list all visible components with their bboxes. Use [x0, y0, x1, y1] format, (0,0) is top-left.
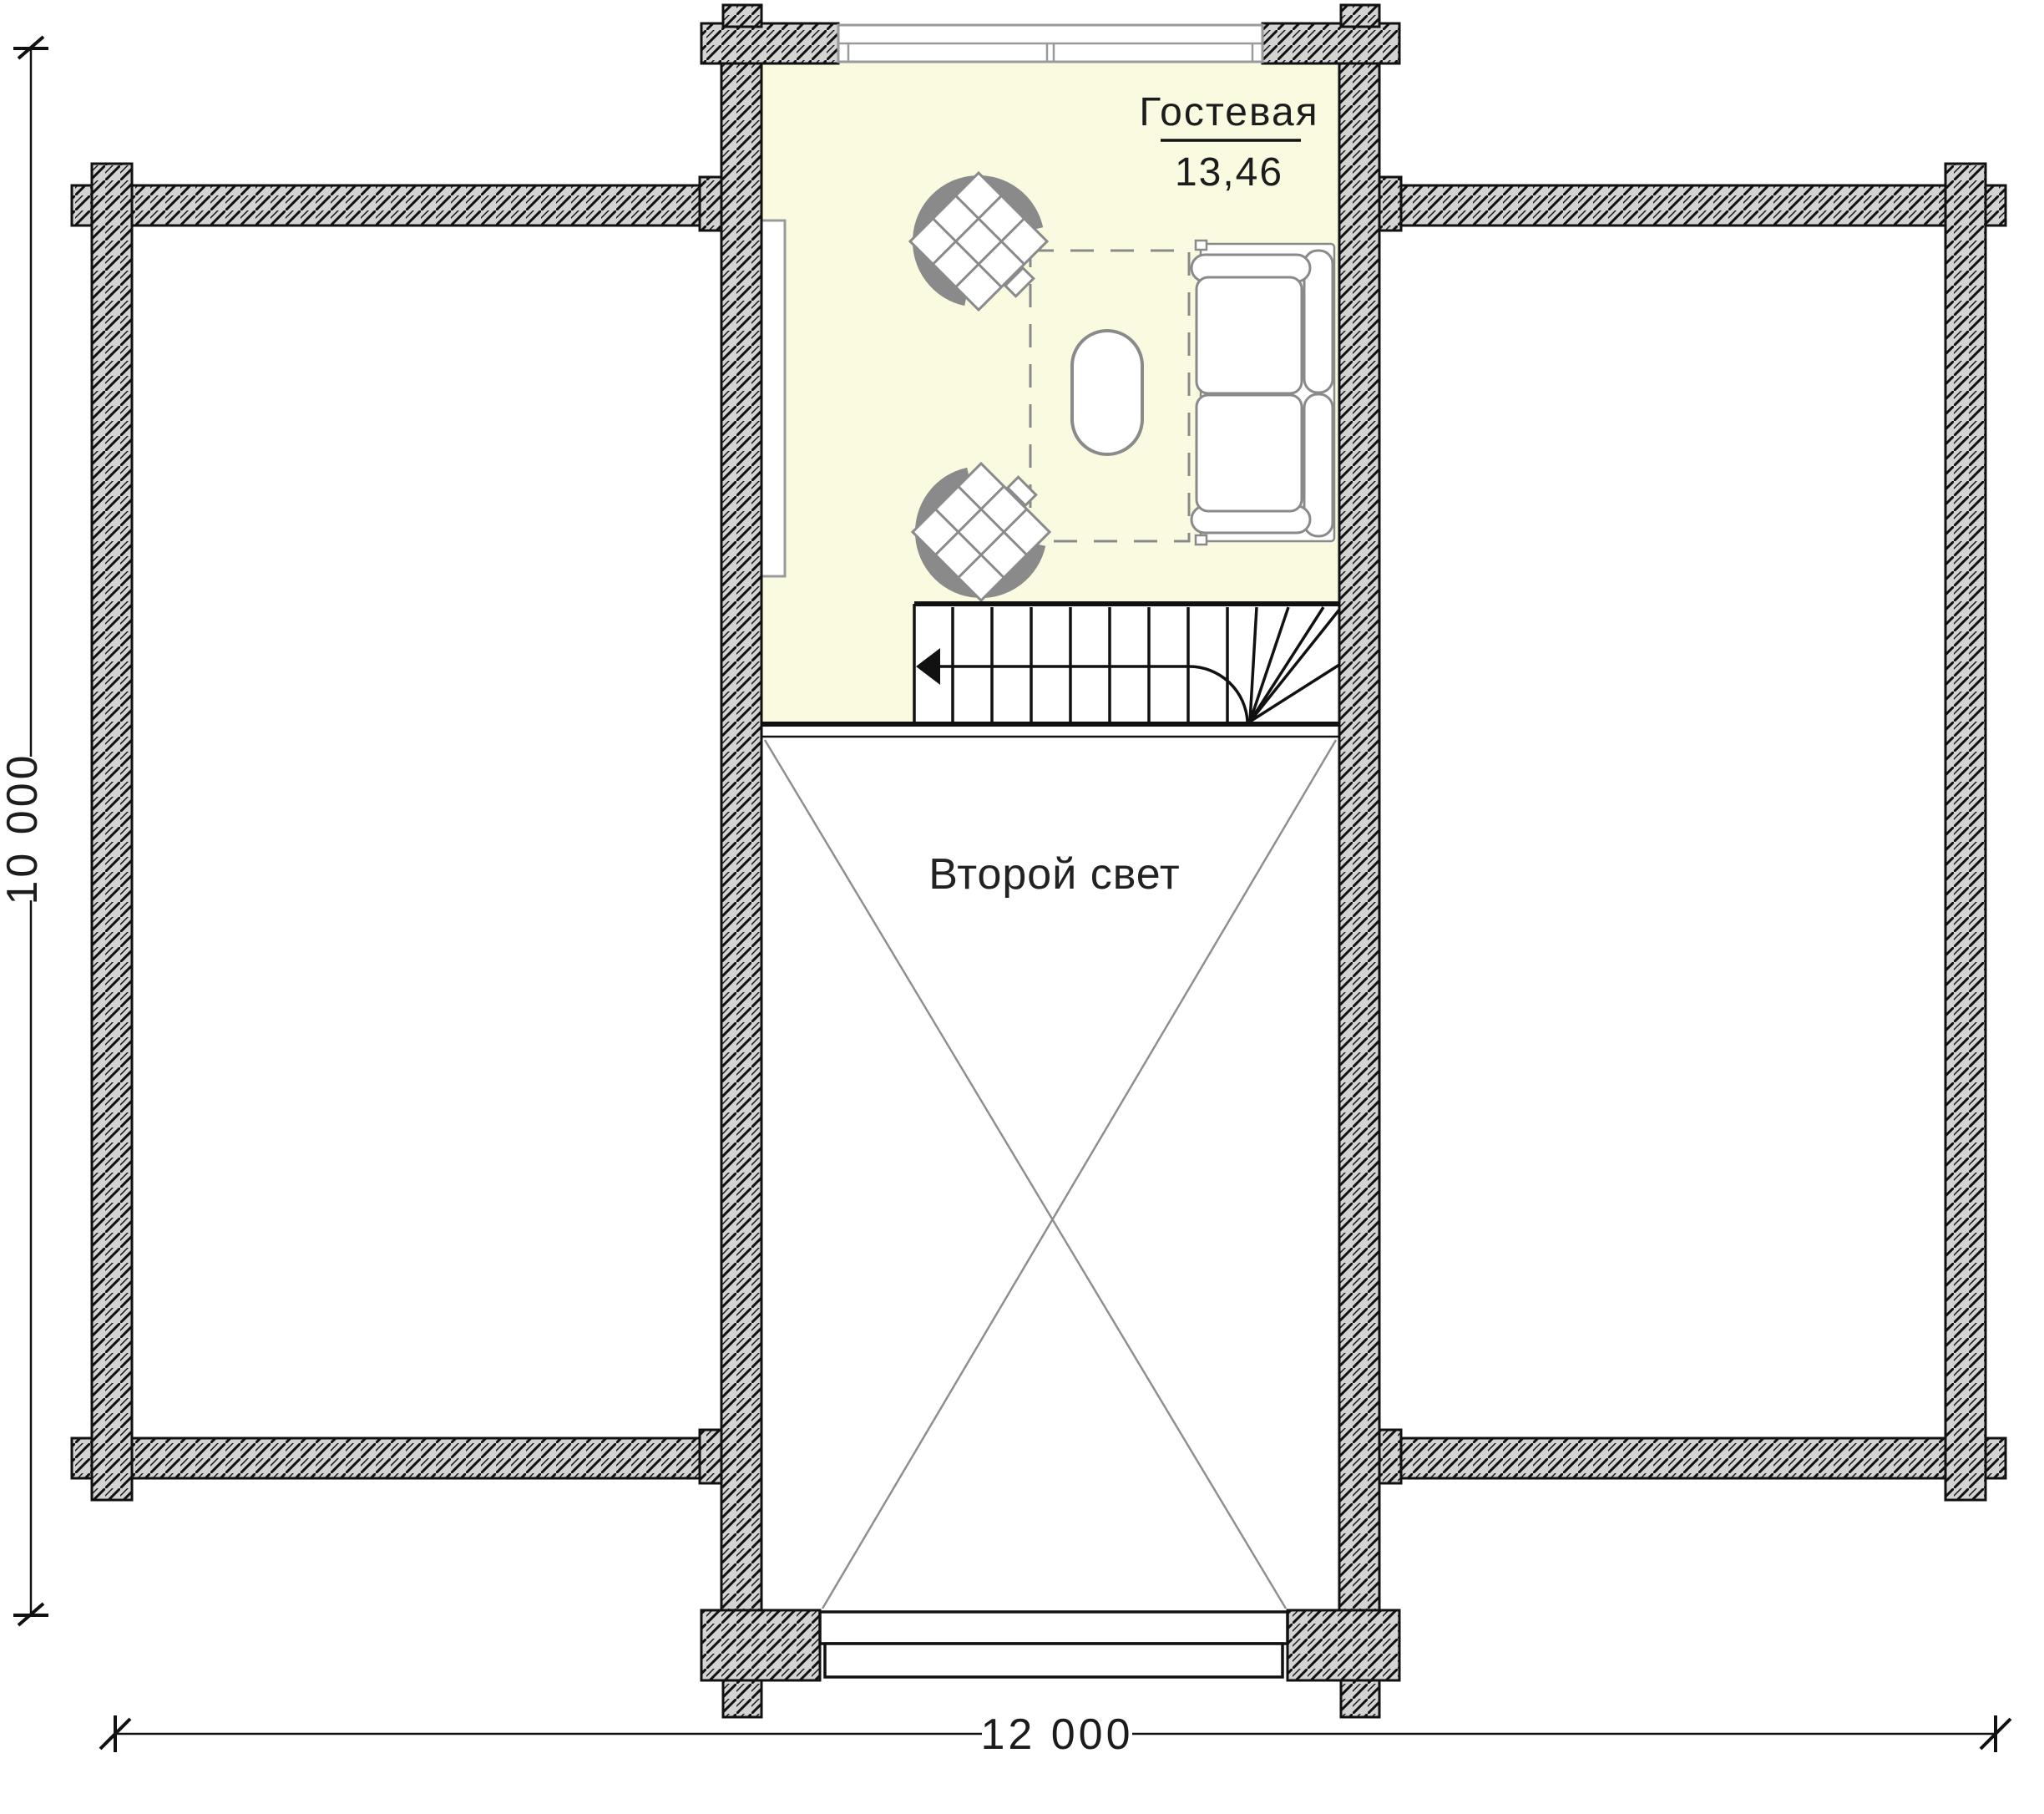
tower-left-wall: [721, 23, 761, 1680]
room-area-label: 13,46: [1175, 150, 1283, 195]
tower-top-wall-right: [1262, 23, 1399, 63]
sofa-seat-cushion: [1197, 277, 1302, 393]
width-dim-label: 12 000: [980, 1710, 1133, 1759]
void-area: Второй свет: [765, 740, 1336, 1609]
right-wing-right-wall: [1945, 164, 1986, 1500]
bottom-window: [820, 1612, 1288, 1677]
top-window: [838, 25, 1262, 62]
right-wing-bottom-wall: [1379, 1438, 2006, 1478]
tower-right-wall: [1339, 23, 1379, 1680]
sofa: [1191, 241, 1334, 545]
guest-room-fill-strip: [761, 603, 914, 723]
left-wall-window: [760, 220, 785, 576]
log-joint: [1379, 1430, 1401, 1483]
tower-bottom-wall-right: [1288, 1610, 1399, 1680]
log-joint: [700, 177, 721, 231]
tower-top-wall-left: [701, 23, 838, 63]
coffee-table: [1072, 331, 1142, 454]
sofa-foot: [1196, 535, 1207, 545]
log-joint: [1341, 1680, 1379, 1717]
right-wing-top-wall: [1379, 185, 2006, 225]
log-joint: [700, 1430, 721, 1483]
room-name-label: Гостевая: [1139, 90, 1318, 134]
log-joint: [1341, 5, 1379, 27]
width-dimension: 12 000: [100, 1710, 2011, 1759]
void-label: Второй свет: [928, 850, 1181, 899]
tower-bottom-wall-left: [701, 1610, 820, 1680]
sofa-foot: [1196, 241, 1207, 250]
height-dim-label: 10 000: [0, 752, 47, 904]
height-dimension: 10 000: [0, 37, 48, 1625]
log-joint: [723, 5, 761, 27]
sofa-seat-cushion: [1197, 395, 1302, 511]
left-wing-left-wall: [92, 164, 132, 1500]
left-wing-bottom-wall: [72, 1438, 721, 1478]
left-wing-top-wall: [72, 185, 721, 225]
floor-plan: Второй свет: [0, 0, 2044, 1814]
log-joint: [723, 1680, 761, 1717]
log-joint: [1379, 177, 1401, 231]
